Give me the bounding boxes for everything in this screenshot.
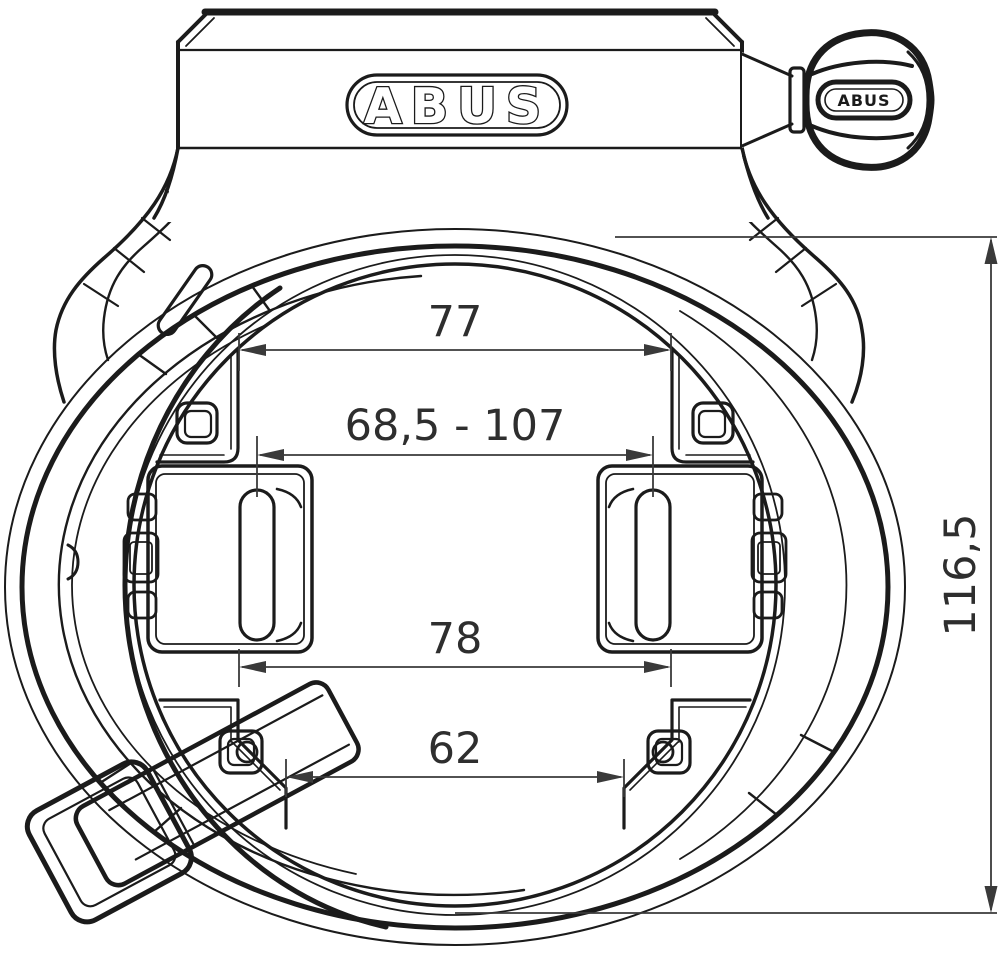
dimension-label-62: 62: [428, 724, 483, 774]
abus-logo: ABUS: [347, 75, 567, 135]
lock-housing: ABUS: [154, 12, 770, 222]
dimension-label-116-5: 116,5: [936, 513, 986, 636]
lock-drawing-svg: ABUS ABUS 77: [0, 0, 1000, 966]
key-marking-text: ABUS: [837, 91, 890, 110]
dimension-label-68-5-107: 68,5 - 107: [345, 401, 566, 451]
abus-logo-text: ABUS: [364, 78, 550, 135]
dimension-label-78: 78: [428, 614, 483, 664]
dimension-label-77: 77: [428, 297, 483, 347]
frame-lock-technical-drawing: ABUS ABUS 77: [0, 0, 1000, 966]
